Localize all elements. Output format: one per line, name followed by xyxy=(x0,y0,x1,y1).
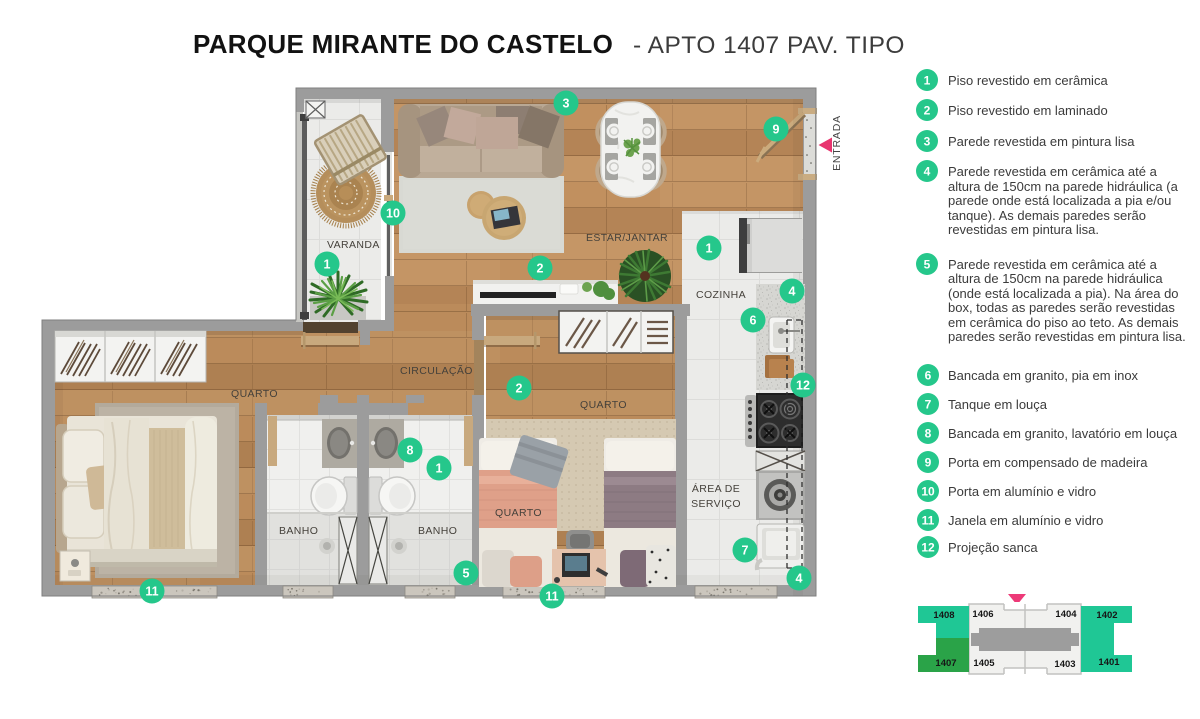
svg-text:QUARTO: QUARTO xyxy=(580,399,627,411)
svg-text:ÁREA DE: ÁREA DE xyxy=(692,482,740,495)
svg-text:Piso revestido em laminado: Piso revestido em laminado xyxy=(948,103,1108,118)
svg-text:Parede revestida em cerâmica: Parede revestida em cerâmica até a xyxy=(948,257,1158,272)
svg-text:1: 1 xyxy=(436,462,443,476)
svg-text:11: 11 xyxy=(145,585,158,599)
svg-text:12: 12 xyxy=(921,541,935,555)
svg-text:10: 10 xyxy=(921,485,935,499)
svg-text:(onde está localizada a pia).: (onde está localizada a pia). Na área do xyxy=(948,286,1179,301)
svg-text:1402: 1402 xyxy=(1096,610,1117,621)
svg-text:paredes serão revestidas em pi: paredes serão revestidas em pintura lisa… xyxy=(948,329,1186,344)
svg-text:8: 8 xyxy=(407,444,414,458)
svg-text:Parede revestida em cerâmica: Parede revestida em cerâmica até a xyxy=(948,164,1158,179)
svg-text:Piso revestido em cerâmica: Piso revestido em cerâmica xyxy=(948,73,1108,88)
svg-text:Bancada em granito, lavatório: Bancada em granito, lavatório em louça xyxy=(948,426,1178,441)
svg-text:4: 4 xyxy=(796,572,803,586)
svg-text:1: 1 xyxy=(706,242,713,256)
svg-text:1401: 1401 xyxy=(1098,657,1120,668)
svg-text:Bancada em granito, pia em ino: Bancada em granito, pia em inox xyxy=(948,368,1139,383)
svg-text:altura de 150cm na parede hidr: altura de 150cm na parede hidráulica (a xyxy=(948,179,1179,194)
svg-text:5: 5 xyxy=(463,567,470,581)
svg-text:4: 4 xyxy=(924,165,931,179)
svg-text:10: 10 xyxy=(386,207,400,221)
svg-text:1403: 1403 xyxy=(1054,659,1075,670)
svg-text:1404: 1404 xyxy=(1055,609,1077,620)
svg-text:CIRCULAÇÃO: CIRCULAÇÃO xyxy=(400,364,473,377)
svg-text:ENTRADA: ENTRADA xyxy=(831,115,843,171)
svg-text:3: 3 xyxy=(563,97,570,111)
svg-text:PARQUE MIRANTE DO CASTELO: PARQUE MIRANTE DO CASTELO xyxy=(193,29,613,59)
svg-text:parede onde está localizada a: parede onde está localizada a pia e/ou xyxy=(948,193,1171,208)
svg-text:1405: 1405 xyxy=(973,658,995,669)
svg-text:2: 2 xyxy=(924,104,931,118)
svg-text:ESTAR/JANTAR: ESTAR/JANTAR xyxy=(586,232,668,244)
svg-text:BANHO: BANHO xyxy=(418,525,457,537)
svg-text:Parede revestida em pintura li: Parede revestida em pintura lisa xyxy=(948,134,1135,149)
svg-text:11: 11 xyxy=(545,590,558,604)
svg-text:1406: 1406 xyxy=(972,609,993,620)
svg-text:VARANDA: VARANDA xyxy=(327,239,380,251)
svg-text:Porta em alumínio e vidro: Porta em alumínio e vidro xyxy=(948,484,1096,499)
svg-text:3: 3 xyxy=(924,135,931,149)
svg-text:11: 11 xyxy=(922,514,935,528)
svg-text:1: 1 xyxy=(324,258,331,272)
svg-text:Tanque em louça: Tanque em louça xyxy=(948,397,1048,412)
svg-text:6: 6 xyxy=(750,314,757,328)
svg-text:box, todas as paredes serão re: box, todas as paredes serão revestidas xyxy=(948,300,1175,315)
svg-text:12: 12 xyxy=(796,379,810,393)
svg-text:4: 4 xyxy=(789,285,796,299)
svg-text:BANHO: BANHO xyxy=(279,525,318,537)
svg-text:altura de 150cm na parede hidr: altura de 150cm na parede hidráulica xyxy=(948,271,1163,286)
svg-text:Porta em compensado de madeira: Porta em compensado de madeira xyxy=(948,455,1148,470)
svg-text:COZINHA: COZINHA xyxy=(696,289,746,301)
svg-text:Janela em alumínio e vidro: Janela em alumínio e vidro xyxy=(948,513,1103,528)
svg-text:8: 8 xyxy=(925,427,932,441)
svg-text:6: 6 xyxy=(925,369,932,383)
svg-text:1408: 1408 xyxy=(933,610,954,621)
svg-text:QUARTO: QUARTO xyxy=(231,388,278,400)
svg-text:em cerâmica do piso ao teto. A: em cerâmica do piso ao teto. As demais xyxy=(948,315,1179,330)
svg-text:tanque). As demais paredes ser: tanque). As demais paredes serão xyxy=(948,208,1146,223)
svg-text:revestidas em pintura lisa.: revestidas em pintura lisa. xyxy=(948,222,1099,237)
svg-text:QUARTO: QUARTO xyxy=(495,507,542,519)
svg-text:7: 7 xyxy=(925,398,932,412)
svg-text:5: 5 xyxy=(924,258,931,272)
svg-text:7: 7 xyxy=(742,544,749,558)
svg-text:Projeção sanca: Projeção sanca xyxy=(948,540,1038,555)
svg-text:9: 9 xyxy=(925,456,932,470)
svg-text:2: 2 xyxy=(516,382,523,396)
svg-text:1: 1 xyxy=(924,74,931,88)
svg-text:- APTO 1407 PAV. TIPO: - APTO 1407 PAV. TIPO xyxy=(633,32,905,59)
svg-text:SERVIÇO: SERVIÇO xyxy=(691,498,741,510)
svg-text:9: 9 xyxy=(773,123,780,137)
svg-text:1407: 1407 xyxy=(935,658,956,669)
svg-text:2: 2 xyxy=(537,262,544,276)
